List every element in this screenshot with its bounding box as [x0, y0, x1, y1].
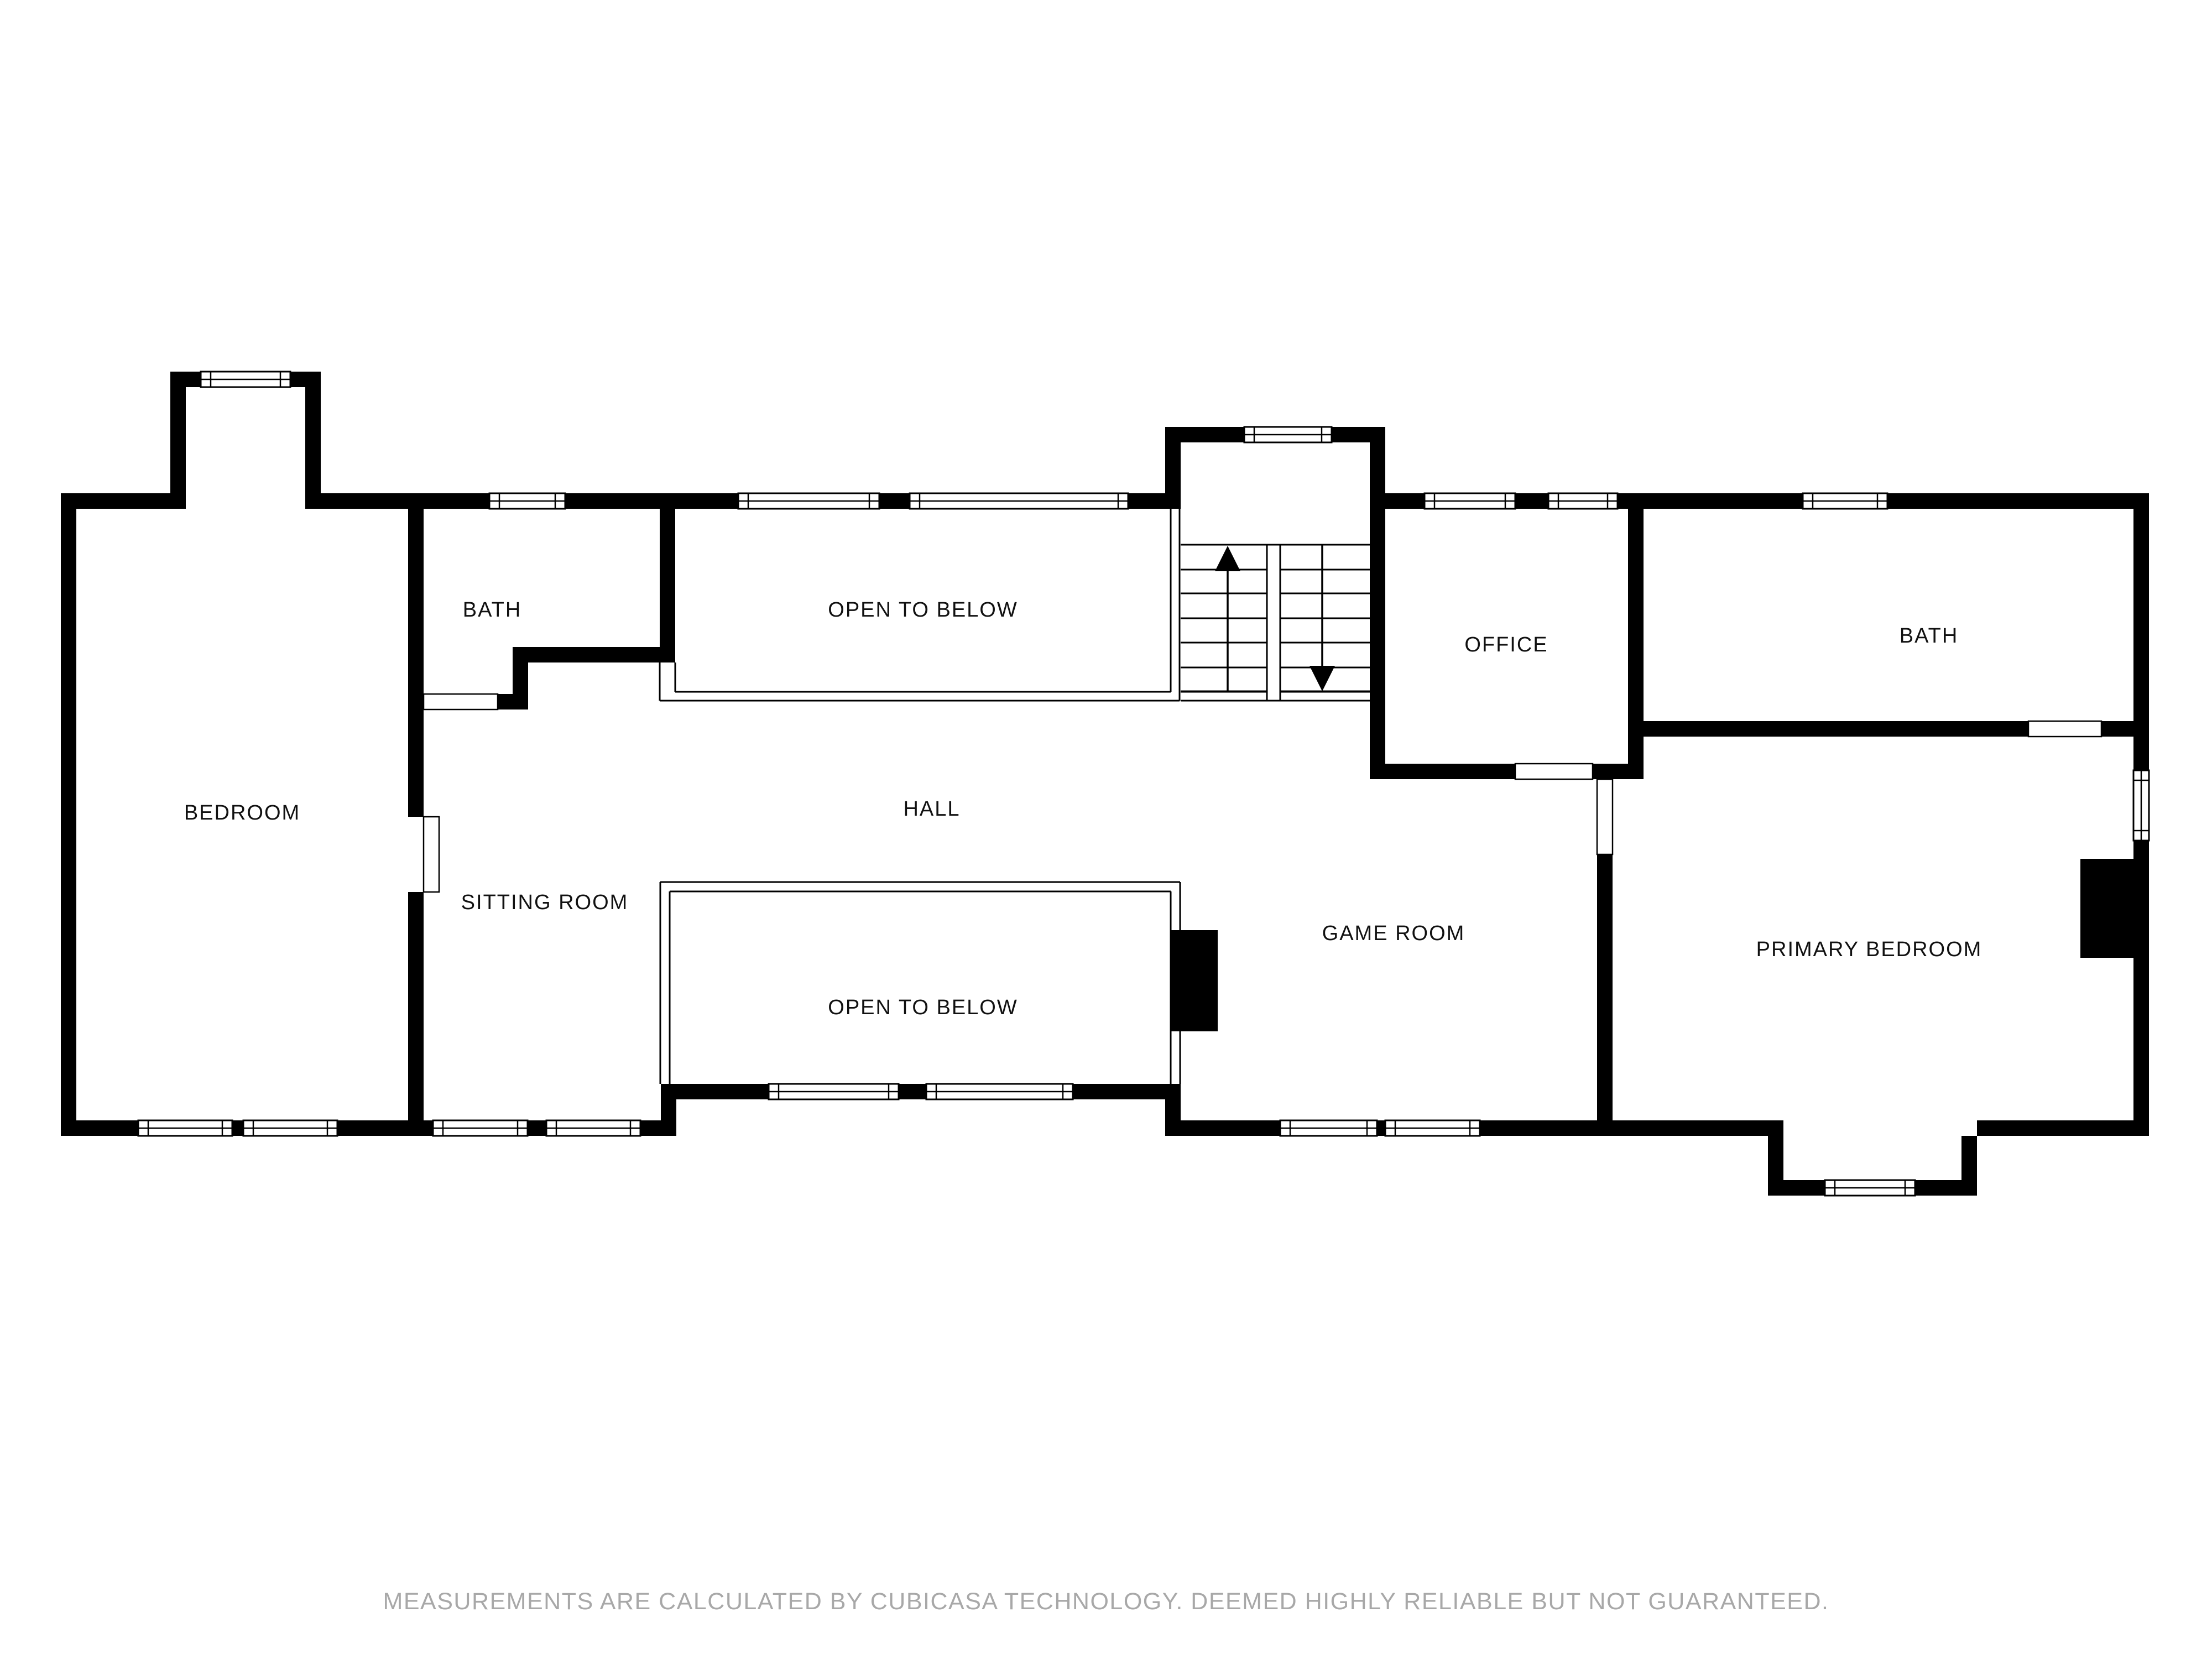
wall-bedroom-bay-right [305, 387, 321, 509]
room-label-bath-left: BATH [463, 598, 522, 622]
wall-bath-right-bottom-b [2101, 721, 2133, 737]
measurement-disclaimer: MEASUREMENTS ARE CALCULATED BY CUBICASA … [0, 1588, 2212, 1615]
wall-bath-right-bottom-a [1644, 721, 2028, 737]
wall-bath-left-bottom-lower-b [498, 694, 528, 709]
door-opening-office-door [1515, 764, 1593, 779]
room-label-open-below-bottom: OPEN TO BELOW [828, 996, 1018, 1019]
wall-office-bottom-wall-a [1370, 764, 1515, 779]
room-label-office: OFFICE [1464, 633, 1548, 656]
wall-top-wall-left [61, 493, 170, 509]
wall-bedroom-bay-left [170, 387, 186, 509]
wall-bedroom-divider-upper [408, 509, 424, 817]
room-label-bedroom: BEDROOM [184, 801, 300, 825]
wall-bedroom-divider-lower [408, 892, 424, 1120]
room-label-bath-right: BATH [1900, 624, 1959, 648]
door-opening-bath-left-door [424, 694, 498, 709]
wall-bottom-wall-right [1977, 1120, 2149, 1136]
wall-bottom-wall-inset [661, 1084, 1181, 1099]
room-label-sitting-room: SITTING ROOM [461, 891, 629, 914]
wall-outer-left-wall [61, 509, 76, 1136]
room-label-primary-bedroom: PRIMARY BEDROOM [1756, 938, 1983, 961]
wall-bath-left-bottom-lower-a [408, 694, 424, 709]
door-opening-primary-bedroom-door [1597, 779, 1613, 854]
wall-bay-step-right [1961, 1136, 1977, 1196]
wall-bath-left-bottom-upper [513, 647, 675, 662]
room-label-game-room: GAME ROOM [1322, 922, 1465, 945]
wall-primary-left-wall [1597, 854, 1613, 1120]
door-opening-bath-right-door [2028, 721, 2101, 737]
floor-plan: BEDROOMBATHOPEN TO BELOWOFFICEBATHHALLSI… [0, 0, 2212, 1659]
stair-center-rail [1267, 545, 1280, 701]
plan-background [0, 0, 2212, 1659]
wall-stairwell-right-wall [1370, 442, 1385, 779]
wall-openbelow-top-left-wall [660, 509, 675, 662]
room-label-hall: HALL [903, 797, 960, 821]
floor-plan-canvas: BEDROOMBATHOPEN TO BELOWOFFICEBATHHALLSI… [0, 0, 2212, 1659]
door-opening-bedroom-sitting-door [424, 817, 439, 892]
gameroom-fireplace [1171, 930, 1218, 1031]
room-label-open-below-top: OPEN TO BELOW [828, 598, 1018, 622]
primary-fireplace [2080, 859, 2135, 958]
wall-stair-landing-left [1165, 442, 1181, 509]
wall-office-right-wall [1628, 509, 1644, 779]
